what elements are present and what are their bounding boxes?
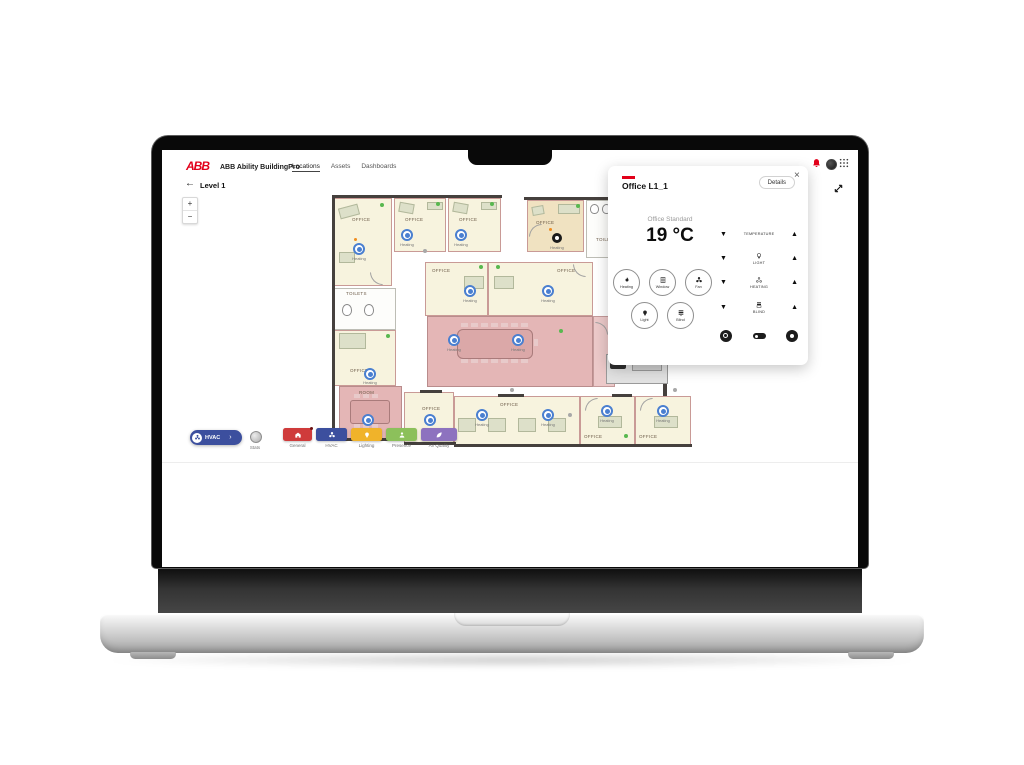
decrease-button[interactable]: ▼ (720, 231, 727, 238)
heating-sensor[interactable] (601, 405, 613, 417)
filter-presence[interactable]: Presence (386, 428, 417, 448)
filter-label: Air Quality (429, 443, 450, 448)
bulb-icon (755, 252, 763, 260)
room-detail-popup: Office L1_1 Details × Office Standard 19… (608, 166, 808, 365)
heating-sensor[interactable] (464, 285, 476, 297)
apps-grid-icon[interactable] (839, 158, 850, 169)
sensor-label: Heating (439, 347, 469, 352)
filter-label: Presence (392, 443, 411, 448)
heating-sensor[interactable] (512, 334, 524, 346)
filter-label: General (289, 443, 305, 448)
wall-segment (332, 288, 335, 440)
presence-dot (479, 265, 483, 269)
gauge-heating[interactable]: Heating (613, 269, 640, 296)
gauge-label: Window (656, 285, 670, 289)
nav-dashboards[interactable]: Dashboards (361, 163, 396, 172)
loading-spinner (552, 233, 562, 243)
room-label: OFFICE (432, 268, 450, 273)
laptop-camera-notch (468, 136, 552, 165)
increase-button[interactable]: ▲ (791, 231, 798, 238)
back-arrow-icon[interactable]: ← (185, 178, 195, 189)
decrease-button[interactable]: ▼ (720, 255, 727, 262)
control-label: LIGHT (753, 261, 765, 265)
main-nav: Locations Assets Dashboards (292, 163, 396, 172)
presence-dot (576, 204, 580, 208)
filter-label: Lighting (359, 443, 375, 448)
gauge-light[interactable]: Light (631, 302, 658, 329)
details-button[interactable]: Details (759, 176, 795, 189)
device-dot (673, 388, 677, 392)
fan-icon (328, 431, 336, 439)
bulb-icon (641, 309, 649, 317)
zoom-out-button[interactable]: − (183, 211, 197, 223)
heating-sensor[interactable] (657, 405, 669, 417)
alert-dot (549, 228, 552, 231)
gauge-fan[interactable]: Fan (685, 269, 712, 296)
heating-sensor[interactable] (542, 409, 554, 421)
presence-dot (624, 434, 628, 438)
room-label: OFFICE (536, 220, 554, 225)
increase-button[interactable]: ▲ (791, 304, 798, 311)
close-icon[interactable]: × (794, 170, 800, 181)
heating-sensor[interactable] (401, 229, 413, 241)
abb-logo: ABB (186, 159, 209, 173)
stats-label: Stats (243, 445, 267, 450)
filter-air-quality[interactable]: Air Quality (421, 428, 457, 448)
scene-a-button[interactable] (720, 330, 732, 342)
control-label: HEATING (750, 285, 768, 289)
toilet-fixture (364, 304, 374, 316)
leaf-icon (435, 431, 443, 439)
scene-toggle[interactable] (753, 333, 766, 339)
sensor-label: Heating (467, 422, 497, 427)
filter-hvac[interactable]: HVAC (316, 428, 347, 448)
control-label: BLIND (753, 310, 765, 314)
laptop-hinge (158, 568, 862, 615)
filter-label: HVAC (325, 443, 337, 448)
gauge-label: Fan (695, 285, 702, 289)
hvac-mode-pill[interactable]: HVAC › (190, 430, 242, 445)
gauge-window[interactable]: Window (649, 269, 676, 296)
sensor-label: Heating (503, 347, 533, 352)
gauge-label: Heating (620, 285, 633, 289)
control-label: TEMPERATURE (744, 232, 775, 236)
building-icon (294, 431, 302, 439)
heating-sensor[interactable] (455, 229, 467, 241)
temperature-control-row: ▼ TEMPERATURE ▲ (720, 224, 798, 244)
gauge-blind[interactable]: Blind (667, 302, 694, 329)
level-title: Level 1 (200, 181, 225, 190)
device-dot (423, 249, 427, 253)
chairs-row (461, 359, 468, 363)
presence-dot (559, 329, 563, 333)
wall-segment (332, 195, 502, 198)
person-icon (398, 431, 406, 439)
light-control-row: ▼ LIGHT ▲ (720, 248, 798, 268)
app-title: ABB Ability BuildingPro (220, 164, 300, 171)
presence-dot (490, 202, 494, 206)
sensor-label: Heating (542, 245, 572, 250)
fan-icon (755, 276, 763, 284)
decrease-button[interactable]: ▼ (720, 279, 727, 286)
wall-segment (612, 394, 632, 397)
sensor-label: Heating (344, 256, 374, 261)
wall-segment (580, 444, 692, 447)
increase-button[interactable]: ▲ (791, 279, 798, 286)
heating-sensor[interactable] (424, 414, 436, 426)
laptop-foot-left (130, 652, 176, 659)
gauge-label: Light (640, 318, 648, 322)
heating-sensor[interactable] (364, 368, 376, 380)
blind-icon (755, 301, 763, 309)
wall-segment (454, 444, 580, 447)
sensor-label: Heating (455, 298, 485, 303)
sensor-label: Heating (392, 242, 422, 247)
scene-row (720, 326, 798, 346)
app-window: ABB ABB Ability BuildingPro Locations As… (162, 150, 858, 567)
heating-sensor[interactable] (362, 414, 374, 426)
device-dot (510, 388, 514, 392)
sensor-label: Heating (533, 298, 563, 303)
sensor-label: Heating (648, 418, 678, 423)
desk (494, 276, 514, 289)
popup-title: Office L1_1 (622, 181, 668, 191)
blind-control-row: ▼ BLIND ▲ (720, 297, 798, 317)
room-label: OFFICE (422, 406, 440, 411)
nav-assets[interactable]: Assets (331, 163, 351, 172)
room-label: OFFICE (584, 434, 602, 439)
presence-dot (380, 203, 384, 207)
stats-button[interactable] (250, 431, 262, 443)
chairs-row (461, 323, 468, 327)
room-label: OFFICE (557, 268, 575, 273)
room-label: OFFICE (459, 217, 477, 222)
zoom-in-button[interactable]: + (183, 198, 197, 211)
hvac-pill-label: HVAC (205, 435, 220, 441)
heating-sensor[interactable] (542, 285, 554, 297)
mode-label: Office Standard (608, 216, 732, 223)
toilet-fixture (590, 204, 599, 214)
desk (427, 202, 443, 210)
toilet-fixture (342, 304, 352, 316)
user-avatar[interactable] (826, 159, 837, 170)
resize-cursor-icon (833, 183, 844, 194)
alert-dot (354, 238, 357, 241)
sensor-label: Heating (533, 422, 563, 427)
wall-segment (498, 394, 524, 397)
blind-icon (677, 309, 685, 317)
increase-button[interactable]: ▲ (791, 255, 798, 262)
presence-dot (436, 202, 440, 206)
fan-icon (192, 433, 202, 443)
bulb-icon (363, 431, 371, 439)
window-icon (659, 276, 667, 284)
fan-icon (695, 276, 703, 284)
laptop-shadow (108, 652, 916, 668)
layer-filter-bar: General HVAC Lighting Presence Air Quali… (283, 428, 457, 448)
laptop-base-notch (454, 613, 570, 626)
filter-lighting[interactable]: Lighting (351, 428, 382, 448)
sensor-label: Heating (592, 418, 622, 423)
room-label: OFFICE (639, 434, 657, 439)
heating-sensor[interactable] (476, 409, 488, 421)
scene-b-button[interactable] (786, 330, 798, 342)
room-label: OFFICE (405, 217, 423, 222)
nav-locations[interactable]: Locations (292, 163, 320, 172)
sensor-label: Heating (446, 242, 476, 247)
notification-bell-icon[interactable] (811, 158, 822, 169)
heating-sensor[interactable] (353, 243, 365, 255)
chevron-right-icon: › (229, 434, 231, 441)
wall-segment (420, 390, 442, 393)
sensor-label: Heating (355, 380, 385, 385)
desk (481, 202, 497, 210)
desk (339, 333, 366, 349)
gauge-label: Blind (676, 318, 684, 322)
presence-dot (386, 334, 390, 338)
decrease-button[interactable]: ▼ (720, 304, 727, 311)
device-dot (568, 413, 572, 417)
alert-badge (310, 427, 313, 430)
filter-general[interactable]: General (283, 428, 312, 448)
flame-icon (623, 276, 631, 284)
room-label: ROOM (359, 390, 374, 395)
map-zoom-controls: + − (182, 197, 198, 224)
accent-bar (622, 176, 635, 179)
room-label: OFFICE (500, 402, 518, 407)
heating-sensor[interactable] (448, 334, 460, 346)
chair (534, 339, 538, 346)
temperature-value: 19 °C (608, 225, 732, 247)
wall-segment (524, 197, 586, 200)
footer-divider (162, 462, 858, 463)
laptop-foot-right (848, 652, 894, 659)
presence-dot (496, 265, 500, 269)
room-label: OFFICE (352, 217, 370, 222)
room-label: TOILETS (346, 291, 367, 296)
wall-segment (332, 196, 335, 288)
heating-control-row: ▼ HEATING ▲ (720, 272, 798, 292)
